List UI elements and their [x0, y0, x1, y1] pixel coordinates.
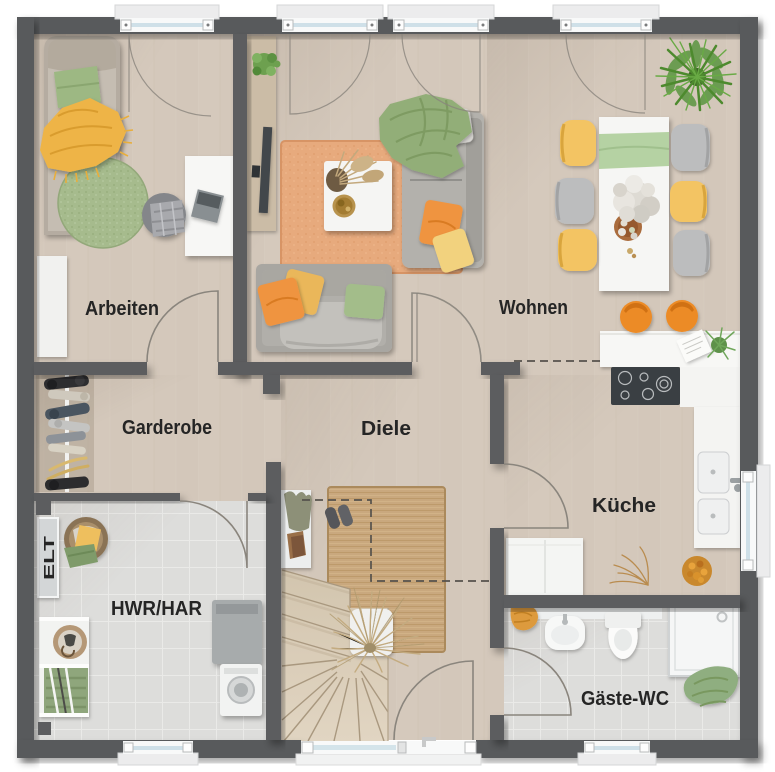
svg-text:Garderobe: Garderobe: [122, 417, 212, 439]
svg-text:Arbeiten: Arbeiten: [85, 298, 159, 320]
svg-text:Gäste-WC: Gäste-WC: [581, 688, 669, 710]
svg-text:HWR/HAR: HWR/HAR: [111, 598, 203, 620]
svg-text:Küche: Küche: [592, 495, 656, 517]
svg-text:Wohnen: Wohnen: [499, 297, 568, 319]
svg-text:Diele: Diele: [361, 418, 411, 440]
svg-text:ELT: ELT: [41, 536, 58, 580]
